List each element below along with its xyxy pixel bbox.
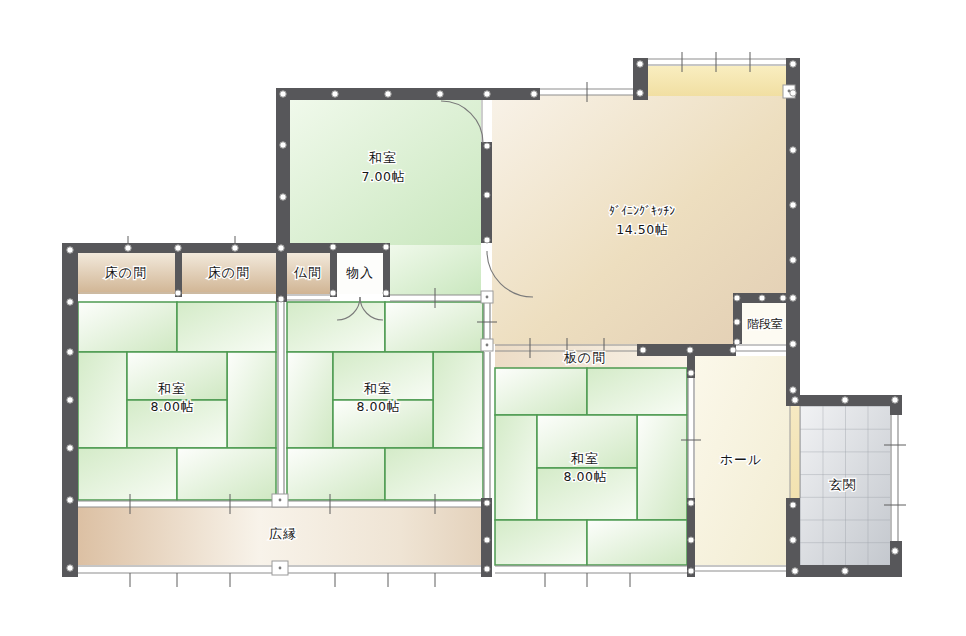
- label-monoire: 物入: [346, 265, 374, 280]
- entrance-step: [790, 406, 800, 498]
- label-stairwell: 階段室: [747, 317, 783, 331]
- label-washitsu8-right-size: 8.00帖: [564, 469, 607, 484]
- label-dk-name: ﾀﾞｲﾆﾝｸﾞｷｯﾁﾝ: [609, 204, 675, 218]
- label-washitsu8-center-size: 8.00帖: [357, 399, 400, 414]
- label-dk-size: 14.50帖: [616, 222, 667, 237]
- tatami-right-room: [495, 368, 687, 565]
- label-washitsu8-left-name: 和室: [157, 381, 186, 396]
- room-washitsu7-ext: [390, 245, 481, 295]
- label-itanoma: 板の間: [564, 350, 606, 365]
- label-tokonoma-right: 床の間: [208, 265, 250, 280]
- label-tokonoma-left: 床の間: [105, 265, 147, 280]
- floor-plan: 和室 7.00帖 ﾀﾞｲﾆﾝｸﾞｷｯﾁﾝ 14.50帖 床の間 床の間 仏間 物…: [0, 0, 966, 636]
- label-washitsu8-center-name: 和室: [363, 381, 392, 396]
- kitchen-counter: [648, 66, 786, 96]
- label-entrance: 玄関: [829, 477, 857, 492]
- label-washitsu7-name: 和室: [368, 150, 397, 165]
- label-washitsu8-left-size: 8.00帖: [151, 399, 194, 414]
- label-butsuma: 仏間: [293, 265, 322, 280]
- label-washitsu8-right-name: 和室: [570, 451, 599, 466]
- label-hiroen: 広縁: [269, 526, 297, 541]
- floor-plan-page: 和室 7.00帖 ﾀﾞｲﾆﾝｸﾞｷｯﾁﾝ 14.50帖 床の間 床の間 仏間 物…: [0, 0, 966, 636]
- label-hall: ホール: [720, 452, 763, 467]
- label-washitsu7-size: 7.00帖: [362, 169, 405, 184]
